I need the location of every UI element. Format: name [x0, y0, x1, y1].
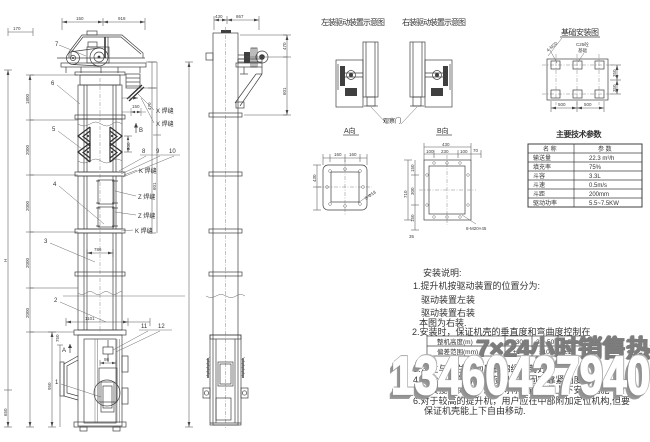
- svg-text:8: 8: [142, 149, 146, 155]
- svg-text:430: 430: [442, 142, 450, 147]
- svg-text:35: 35: [409, 234, 415, 239]
- svg-text:601: 601: [152, 182, 157, 190]
- svg-text:参 数: 参 数: [598, 145, 612, 153]
- svg-text:左装驱动装置示意图: 左装驱动装置示意图: [321, 17, 385, 27]
- svg-text:观察门: 观察门: [383, 117, 401, 125]
- svg-text:500: 500: [558, 102, 566, 107]
- svg-text:470: 470: [147, 102, 152, 110]
- svg-text:12: 12: [158, 324, 165, 330]
- svg-text:100: 100: [460, 149, 468, 154]
- svg-text:K 焊缝: K 焊缝: [139, 167, 157, 175]
- svg-text:X 焊缝: X 焊缝: [156, 120, 174, 128]
- svg-text:2000: 2000: [25, 200, 30, 211]
- svg-text:1.提升机按驱动装置的位置分为:: 1.提升机按驱动装置的位置分为:: [413, 280, 540, 291]
- svg-text:3.3L: 3.3L: [589, 174, 601, 180]
- svg-text:430: 430: [312, 174, 317, 182]
- svg-text:300: 300: [410, 187, 415, 195]
- svg-text:1800: 1800: [25, 93, 30, 104]
- svg-text:名 称: 名 称: [543, 145, 557, 153]
- svg-text:200mm: 200mm: [589, 192, 609, 198]
- svg-text:75%: 75%: [589, 165, 602, 171]
- svg-text:650: 650: [3, 408, 8, 416]
- svg-text:Z 焊缝: Z 焊缝: [138, 212, 155, 220]
- svg-text:A向: A向: [344, 126, 356, 135]
- svg-text:70: 70: [473, 148, 479, 153]
- svg-text:4: 4: [53, 182, 57, 188]
- svg-text:786: 786: [94, 247, 102, 252]
- svg-text:右装驱动装置示意图: 右装驱动装置示意图: [402, 17, 466, 27]
- svg-text:2: 2: [54, 298, 58, 304]
- svg-text:输送量: 输送量: [533, 154, 551, 162]
- svg-text:150: 150: [410, 214, 415, 222]
- svg-text:950: 950: [47, 382, 52, 390]
- svg-text:867: 867: [236, 14, 244, 19]
- svg-text:斗距: 斗距: [533, 191, 545, 198]
- svg-text:1: 1: [55, 380, 59, 386]
- svg-text:150: 150: [410, 164, 415, 172]
- svg-text:3: 3: [44, 239, 48, 245]
- svg-text:安装说明:: 安装说明:: [423, 267, 462, 278]
- svg-text:5: 5: [52, 127, 56, 133]
- svg-text:9: 9: [156, 149, 160, 155]
- svg-text:主要技术参数: 主要技术参数: [556, 129, 602, 139]
- svg-text:K 焊缝: K 焊缝: [135, 227, 153, 235]
- svg-text:22.3 m³/h: 22.3 m³/h: [589, 156, 614, 162]
- svg-text:160: 160: [349, 152, 357, 157]
- svg-text:8-Φ18: 8-Φ18: [364, 189, 378, 201]
- svg-text:170: 170: [13, 26, 21, 31]
- svg-text:430: 430: [215, 14, 223, 19]
- svg-text:驱动装置左装: 驱动装置左装: [421, 294, 475, 305]
- svg-text:0.5m/s: 0.5m/s: [589, 183, 607, 189]
- svg-text:2000: 2000: [25, 144, 30, 155]
- svg-text:7: 7: [55, 42, 59, 48]
- svg-text:A: A: [62, 348, 66, 354]
- svg-text:601: 601: [282, 87, 287, 95]
- svg-text:5.5~7.5KW: 5.5~7.5KW: [589, 201, 619, 207]
- svg-text:150: 150: [132, 104, 140, 109]
- svg-text:10: 10: [169, 149, 176, 155]
- svg-text:150: 150: [76, 16, 84, 21]
- svg-text:B: B: [139, 128, 143, 134]
- svg-text:斗速: 斗速: [533, 182, 545, 189]
- svg-text:基础安装图: 基础安装图: [561, 27, 599, 37]
- svg-text:6: 6: [51, 81, 55, 87]
- svg-text:160: 160: [334, 152, 342, 157]
- svg-text:驱动装置右装: 驱动装置右装: [421, 307, 475, 318]
- svg-text:750: 750: [55, 334, 60, 342]
- svg-text:230: 230: [441, 149, 449, 154]
- svg-text:H: H: [3, 259, 8, 262]
- svg-text:Z 焊缝: Z 焊缝: [138, 193, 155, 201]
- svg-text:470: 470: [282, 42, 287, 50]
- svg-text:8-M20×45: 8-M20×45: [466, 226, 487, 231]
- svg-text:11: 11: [141, 324, 148, 330]
- svg-text:500: 500: [584, 102, 592, 107]
- svg-text:斗容: 斗容: [533, 172, 545, 180]
- svg-text:填充率: 填充率: [533, 163, 551, 171]
- svg-text:918: 918: [118, 16, 126, 21]
- svg-text:100: 100: [426, 149, 434, 154]
- svg-text:X 焊缝: X 焊缝: [156, 107, 174, 115]
- svg-text:98: 98: [104, 357, 110, 362]
- svg-text:C25砼: C25砼: [576, 41, 589, 47]
- svg-text:B向: B向: [437, 126, 449, 135]
- svg-text:710: 710: [403, 190, 408, 198]
- svg-text:基础: 基础: [578, 47, 587, 54]
- svg-text:2000: 2000: [25, 257, 30, 268]
- svg-text:2000: 2000: [25, 307, 30, 318]
- svg-text:驱动功率: 驱动功率: [533, 199, 557, 207]
